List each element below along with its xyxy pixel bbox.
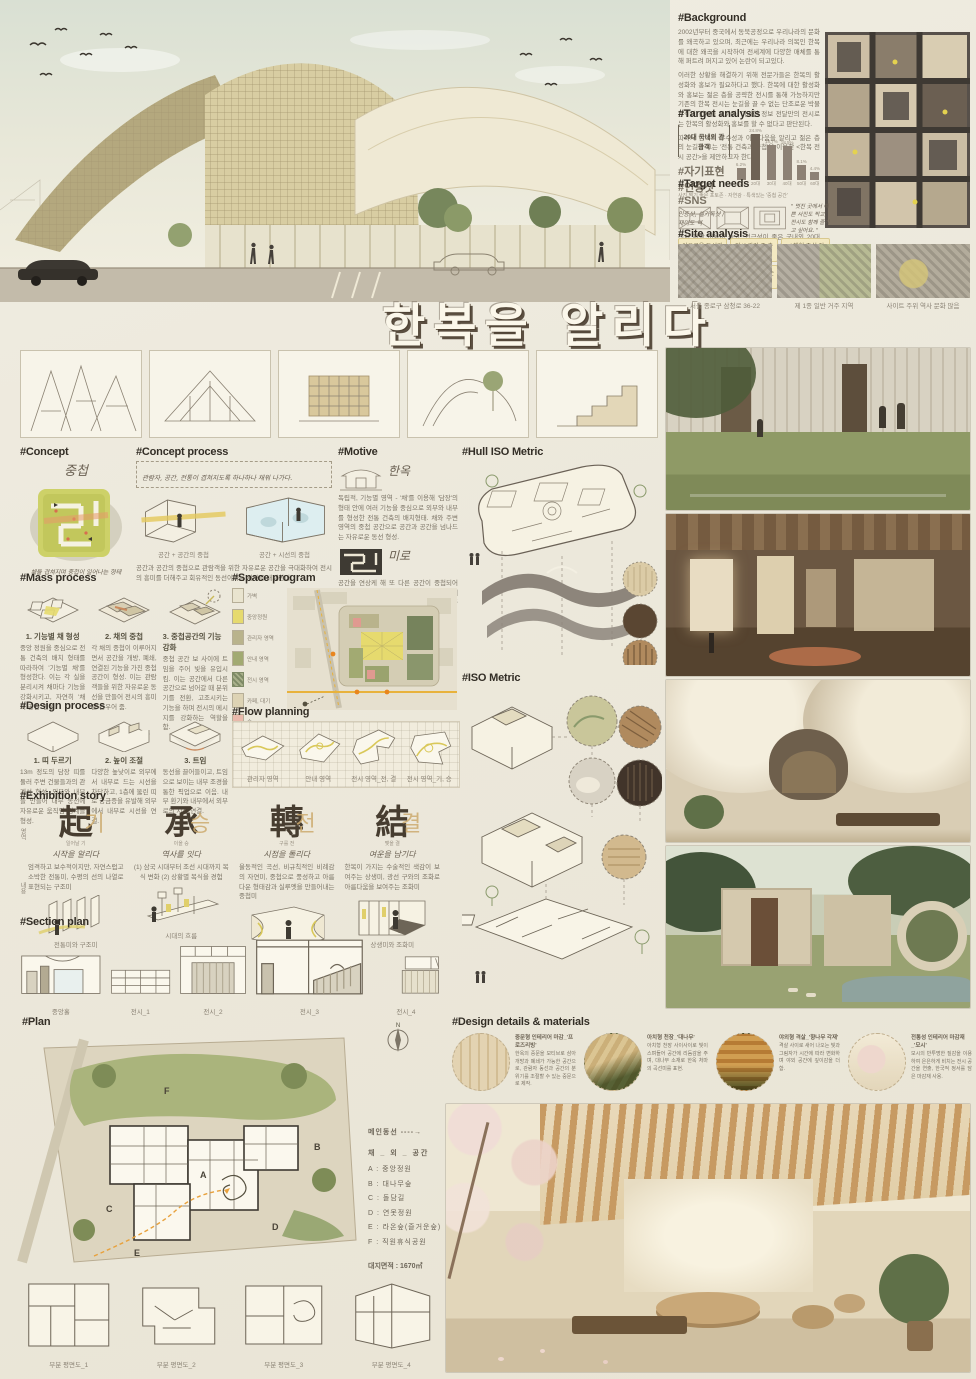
design-step-title: 1. 띠 두르기 xyxy=(34,755,72,766)
photozone-wireframe-icon xyxy=(716,206,750,230)
hull-iso-heading: #Hull ISO Metric xyxy=(462,446,662,458)
concept-diagram xyxy=(26,481,126,565)
sight-overlap-diagram xyxy=(237,492,332,544)
render-cave-lounge xyxy=(666,680,970,842)
sub-plan: 부분 평면도_2 xyxy=(128,1276,226,1369)
plan-letter: D xyxy=(272,1222,279,1232)
hanbok-collage-image xyxy=(825,32,970,228)
detail-body: 한옥의 중문을 모티브로 삼아 개방과 폐쇄가 가능한 공간으로, 관람자 동선… xyxy=(515,1051,576,1089)
flow-caption: 전시 영역_전, 결 xyxy=(348,773,400,783)
sub-plan-row: 부분 평면도_1 부분 평면도_2 부분 평면도_3 부분 평면도_4 xyxy=(20,1276,440,1369)
motive-heading: #Motive xyxy=(338,446,458,458)
sub-plan: 부분 평면도_1 xyxy=(20,1276,118,1369)
concept-process-note: 관람자, 공간, 전통이 겹쳐지도록 하나하나 채워 나가다. xyxy=(136,461,332,488)
sub-plan-caption: 부분 평면도_3 xyxy=(235,1359,333,1369)
section-caption: 중앙홀 xyxy=(20,1006,102,1016)
iso-metric-diagram xyxy=(462,687,662,999)
sub-plan-caption: 부분 평면도_4 xyxy=(343,1359,441,1369)
render-exhibition-hall xyxy=(666,514,970,676)
stage-phrase: 시작을 알리다 xyxy=(52,849,99,860)
site-map-caption: 사이트 주위 역사 문화 많음 xyxy=(876,300,970,310)
background-heading: #Background xyxy=(678,12,970,24)
detail-item: 야외형 격살_'향나무 각재' 격살 사이로 새어 나오는 빛과 그림자가 시간… xyxy=(716,1033,840,1091)
plan-letter: B xyxy=(314,1142,321,1152)
stage-hangul: 전 xyxy=(296,814,316,836)
bar-value: 18.7% xyxy=(765,139,778,144)
stage-hangul: 기 xyxy=(85,814,105,836)
design-process-heading: #Design process xyxy=(20,700,228,712)
legend-label: 전시 영역 xyxy=(247,676,269,684)
legend-label: 카페, 대기 xyxy=(247,697,270,705)
detail-item: 중문형 인테리어 마감_'프로즈리빙' 한옥의 중문을 모티브로 삼아 개방과 … xyxy=(452,1033,576,1091)
material-photo-door xyxy=(452,1033,510,1091)
plan-letter: C xyxy=(106,1204,113,1214)
mass-step-diagram xyxy=(164,588,226,628)
site-map-image xyxy=(678,244,772,298)
bar-value: 4.4% xyxy=(810,166,820,171)
detail-title: 전통성 인테리어 마감재_'모시' xyxy=(911,1033,972,1049)
motive-keyword: 미로 xyxy=(388,547,410,564)
presentation-board: 한복을 알리다 _중첩공간으로 흥미로움을 더하다 #Background 20… xyxy=(0,0,976,1379)
section-caption: 전시_2 xyxy=(179,1006,247,1016)
mass-process-heading: #Mass process xyxy=(20,572,228,584)
bar-value: 18.5% xyxy=(781,140,794,145)
mass-step-title: 3. 중첩공간의 기능 강화 xyxy=(163,631,228,653)
detail-title: 야외형 격살_'향나무 각재' xyxy=(779,1033,840,1041)
site-analysis-section: #Site analysis 서울 종로구 삼청로 36-22 제 1종 일반 … xyxy=(678,228,970,310)
sketch-panel xyxy=(407,350,529,438)
sub-plan-caption: 부분 평면도_2 xyxy=(128,1359,226,1369)
stage-hanja: 結결 xyxy=(375,806,409,840)
flow-planning-section: #Flow planning 관리자 영역 안내 영역 전시 영역_전, 결 전… xyxy=(232,706,460,788)
stage-hanja: 承승 xyxy=(164,806,198,840)
iso-metric-section: #ISO Metric xyxy=(462,672,662,1002)
space-program-map xyxy=(287,588,457,710)
detail-body: 모시의 반투명한 질감을 이용하여 은은하게 비치는 전시 공간을 연출, 한국… xyxy=(911,1051,972,1081)
concept-section: #Concept 중첩 채들 겹쳐지며 중첩이 일어나는 형태 xyxy=(20,446,132,576)
background-paragraph: 2002년부터 중국에서 동북공정으로 우리나라의 문화를 왜곡하고 있으며, … xyxy=(678,28,820,67)
hero-render xyxy=(0,0,670,302)
plan-letter: F xyxy=(164,1086,170,1096)
flow-diagram: 전시 영역_전, 결 xyxy=(348,726,400,783)
site-map-image xyxy=(876,244,970,298)
legend-label: 안내 영역 xyxy=(247,655,269,663)
motive-keyword: 한옥 xyxy=(388,462,410,479)
stage-body: 엄격하고 보수적이지만, 자연스럽고 소박한 전통미, 수평의 선의 나열로 표… xyxy=(28,863,124,892)
mass-step-title: 1. 기능별 채 형성 xyxy=(26,631,80,642)
sketch-panel xyxy=(20,350,142,438)
material-photo-mosi-fabric xyxy=(848,1033,906,1091)
sub-plan: 부분 평면도_4 xyxy=(343,1276,441,1369)
design-details-heading: #Design details & materials xyxy=(452,1016,972,1028)
bar-value: 24.8% xyxy=(749,128,762,133)
concept-process-heading: #Concept process xyxy=(136,446,332,458)
detail-body: 격살 사이로 새어 나오는 빛과 그림자가 시간에 따라 변화하며 야외 공간에… xyxy=(779,1043,840,1073)
section-drawing xyxy=(179,939,247,1001)
stage-body: 율동적인 곡선, 비규칙적인 비례감의 자연미, 중첩으로 풍성하고 아름다운 … xyxy=(239,863,335,902)
render-final-interior xyxy=(446,1104,970,1372)
plan-section: #Plan xyxy=(22,1016,50,1028)
section-caption: 전시_3 xyxy=(255,1006,364,1016)
legend-label: 관리자 영역 xyxy=(247,634,274,642)
row-label: 영역 xyxy=(18,828,27,840)
space-program-heading: #Space program xyxy=(232,572,460,584)
section-plan-section: #Section plan 중앙홀 전시_1 전시_2 전시_3 전시_4 xyxy=(20,916,440,1016)
material-photo-bamboo-ceiling xyxy=(584,1033,642,1091)
design-step-title: 2. 높이 조절 xyxy=(105,755,143,766)
photozone-wireframe-icon xyxy=(753,206,787,230)
render-outdoor-courtyard xyxy=(666,846,970,1008)
chart-bracket-label: 20대 국내외 관광객 xyxy=(678,125,730,157)
plan-letter: E xyxy=(134,1248,140,1258)
hanok-sketch xyxy=(338,462,384,492)
material-photo-lattice xyxy=(716,1033,774,1091)
motive-body: 독립적, 기능별 영역 - '채'를 이용해 '담장'의 형태 안에 여러 기능… xyxy=(338,494,458,543)
design-step-diagram xyxy=(95,716,153,752)
site-plan-drawing: F A B C D E xyxy=(14,1030,362,1268)
section-drawing xyxy=(110,961,171,1001)
space-overlap-diagram xyxy=(136,492,231,544)
design-step-diagram xyxy=(24,716,82,752)
design-step-diagram xyxy=(166,716,224,752)
stage-body: (1) 삼국 시대부터 조선 시대까지 복식 변화 (2) 상황별 복식을 경험 xyxy=(134,863,230,883)
section-drawing xyxy=(255,933,364,1001)
detail-body: 아치형 천장 사이사이로 빛이 스며들어 공간에 리듬감을 주며, 대나무 소재… xyxy=(647,1043,708,1073)
detail-title: 아치형 천장_'대나무' xyxy=(647,1033,708,1041)
sketch-panel xyxy=(536,350,658,438)
site-map-caption: 서울 종로구 삼청로 36-22 xyxy=(678,300,772,310)
concept-process-handwriting: 관람자, 공간, 전통이 겹쳐지도록 하나하나 채워 나가다. xyxy=(142,474,292,482)
site-map-caption: 제 1종 일반 거주 지역 xyxy=(777,300,871,310)
design-step-title: 3. 트임 xyxy=(184,755,206,766)
section-plan-heading: #Section plan xyxy=(20,916,440,928)
flow-diagram: 안내 영역 xyxy=(293,726,345,783)
compass-icon: N xyxy=(385,1022,411,1061)
svg-text:N: N xyxy=(396,1023,400,1029)
plan-letter: A xyxy=(200,1170,207,1180)
legend-label: 중앙정원 xyxy=(247,613,267,621)
section-drawing xyxy=(20,945,102,1001)
flow-caption: 관리자 영역 xyxy=(237,773,289,783)
legend-label: 가벽 xyxy=(247,592,257,600)
stage-phrase: 역사를 잇다 xyxy=(162,849,201,860)
section-drawing xyxy=(372,949,440,1001)
plan-heading: #Plan xyxy=(22,1016,50,1028)
stage-hangul: 승 xyxy=(190,814,210,836)
stage-hangul: 결 xyxy=(401,814,421,836)
concept-process-caption: 공간 + 공간의 중첩 xyxy=(136,549,231,559)
bar-value: 8.1% xyxy=(796,159,806,164)
render-courtyard-garden xyxy=(666,348,970,510)
flow-diagram: 관리자 영역 xyxy=(237,726,289,783)
design-details-section: #Design details & materials 중문형 인테리어 마감_… xyxy=(452,1016,972,1091)
detail-item: 전통성 인테리어 마감재_'모시' 모시의 반투명한 질감을 이용하여 은은하게… xyxy=(848,1033,972,1091)
concept-process-caption: 공간 + 시선의 중첩 xyxy=(237,549,332,559)
photozone-wireframe-icon xyxy=(678,206,712,230)
sub-plan: 부분 평면도_3 xyxy=(235,1276,333,1369)
site-analysis-heading: #Site analysis xyxy=(678,228,970,240)
target-needs-heading: #Target needs xyxy=(678,178,830,190)
sub-plan-caption: 부분 평면도_1 xyxy=(20,1359,118,1369)
target-analysis-heading: #Target analysis xyxy=(678,108,820,120)
concept-sketch-strip xyxy=(20,350,658,438)
mass-step-diagram xyxy=(93,588,155,628)
hero-building-illustration xyxy=(0,0,670,302)
flow-caption: 안내 영역 xyxy=(293,773,345,783)
flow-caption: 전시 영역_기, 승 xyxy=(404,773,456,783)
bar-value: 6.2% xyxy=(736,162,746,167)
target-needs-note: 사진 찍기 좋은 포토존 · 자연광 · 특색있는 '중첩 공간' xyxy=(678,192,830,199)
section-caption: 전시_1 xyxy=(110,1006,171,1016)
detail-item: 아치형 천장_'대나무' 아치형 천장 사이사이로 빛이 스며들어 공간에 리듬… xyxy=(584,1033,708,1091)
mass-step-diagram xyxy=(22,588,84,628)
stage-phrase: 여운을 남기다 xyxy=(369,849,416,860)
stage-body: 한복이 가지는 수술적인 색감이 보여주는 상생미, 광선 구와의 조화로 아름… xyxy=(345,863,441,892)
flow-planning-heading: #Flow planning xyxy=(232,706,460,718)
hull-iso-diagram xyxy=(462,461,662,665)
section-caption: 전시_4 xyxy=(372,1006,440,1016)
stage-hanja: 轉전 xyxy=(270,806,304,840)
stage-phrase: 시점을 돌리다 xyxy=(263,849,310,860)
concept-heading: #Concept xyxy=(20,446,132,458)
sketch-panel xyxy=(278,350,400,438)
exhibition-story-heading: #Exhibition story xyxy=(20,790,440,802)
site-map-image xyxy=(777,244,871,298)
concept-keyword: 중첩 xyxy=(20,460,132,479)
stage-hanja: 起기 xyxy=(59,806,93,840)
detail-title: 중문형 인테리어 마감_'프로즈리빙' xyxy=(515,1033,576,1049)
row-label: 내용 xyxy=(18,882,27,894)
flow-diagram: 전시 영역_기, 승 xyxy=(404,726,456,783)
hull-iso-section: #Hull ISO Metric xyxy=(462,446,662,668)
concept-process-section: #Concept process 관람자, 공간, 전통이 겹쳐지도록 하나하나… xyxy=(136,446,332,584)
iso-metric-heading: #ISO Metric xyxy=(462,672,662,684)
sketch-panel xyxy=(149,350,271,438)
mass-step-title: 2. 채의 중첩 xyxy=(105,631,143,642)
